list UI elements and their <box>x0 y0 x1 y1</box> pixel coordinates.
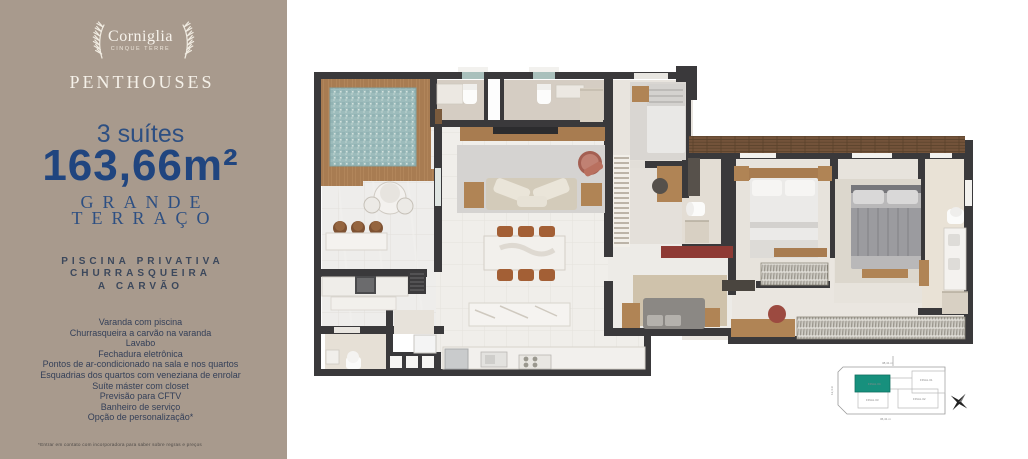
svg-text:FINAL 01: FINAL 01 <box>920 378 933 382</box>
svg-text:FINAL 04: FINAL 04 <box>868 382 881 386</box>
svg-text:38,41 m: 38,41 m <box>882 361 893 365</box>
svg-text:12,4 m: 12,4 m <box>830 385 834 395</box>
svg-text:FINAL 02: FINAL 02 <box>913 397 926 401</box>
svg-text:36,41 m: 36,41 m <box>880 417 891 421</box>
svg-text:FINAL 03: FINAL 03 <box>866 398 879 402</box>
